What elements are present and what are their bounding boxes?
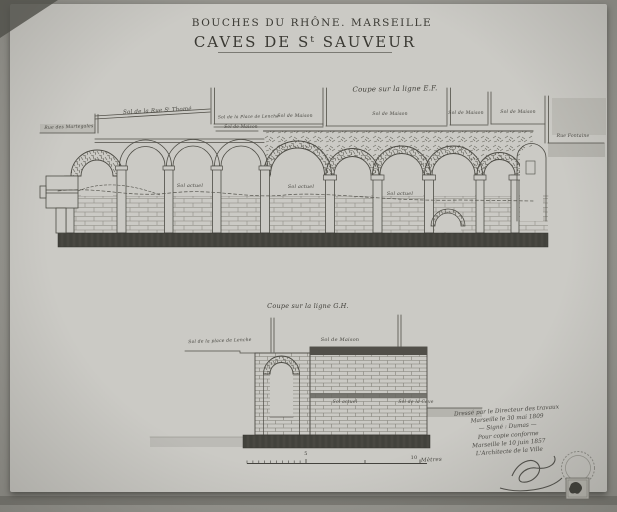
doorway-interior [270,363,293,418]
foundation-band [58,233,548,247]
signature-flourish [500,456,562,491]
label-sol-maison-3: Sol de Maison [368,113,412,118]
scale-end-number: 10 [408,456,420,461]
label-sol-actuel-2: Sol actuel [283,186,319,191]
foundation-band-gh [243,435,430,448]
wash-top-right [552,98,606,135]
page-title: CAVES DE Sᵗ SAUVEUR [155,33,455,51]
annotation-block: Dressé par le Directeur des travaux Mars… [436,402,579,461]
label-sol-maison-4: Sol de Maison [446,112,486,117]
label-gh-sol-actuel: Sol actuel [328,401,362,406]
label-sol-maison-1: Sol de Maison [220,126,262,130]
title-underline [218,52,392,53]
caption-section-gh: Coupe sur la ligne G.H. [258,302,358,310]
scale-mid-number: 5 [301,452,311,457]
label-sol-actuel-1: Sol actuel [170,185,210,190]
label-gh-sol-maison: Sol de Maison [316,338,364,343]
wash-street-right [548,143,605,157]
label-rue-right: Rue Fontaine [554,135,592,140]
mh-stamp [566,478,589,499]
upper-walls [271,315,401,352]
label-gh-sol-cave: Sol de la Cave [396,401,436,406]
ground-line-left [185,351,258,353]
wall-top-band [310,347,427,355]
label-sol-place-lenche: Sol de la Place de Lenche [218,116,270,121]
label-sol-maison-5: Sol de Maison [498,111,538,116]
wall-mid-band [310,393,427,398]
photo-backdrop: BOUCHES DU RHÔNE. MARSEILLE CAVES DE Sᵗ … [0,0,617,512]
region-title: BOUCHES DU RHÔNE. MARSEILLE [162,17,462,29]
wash-left-low [150,437,243,447]
section-gh-drawing [150,315,482,448]
wall-masonry-block [310,347,427,435]
scale-bar [247,459,427,464]
right-doorway [517,144,546,222]
label-sol-maison-2: Sol de Maison [275,115,315,120]
label-sol-actuel-3: Sol actuel [382,193,418,198]
